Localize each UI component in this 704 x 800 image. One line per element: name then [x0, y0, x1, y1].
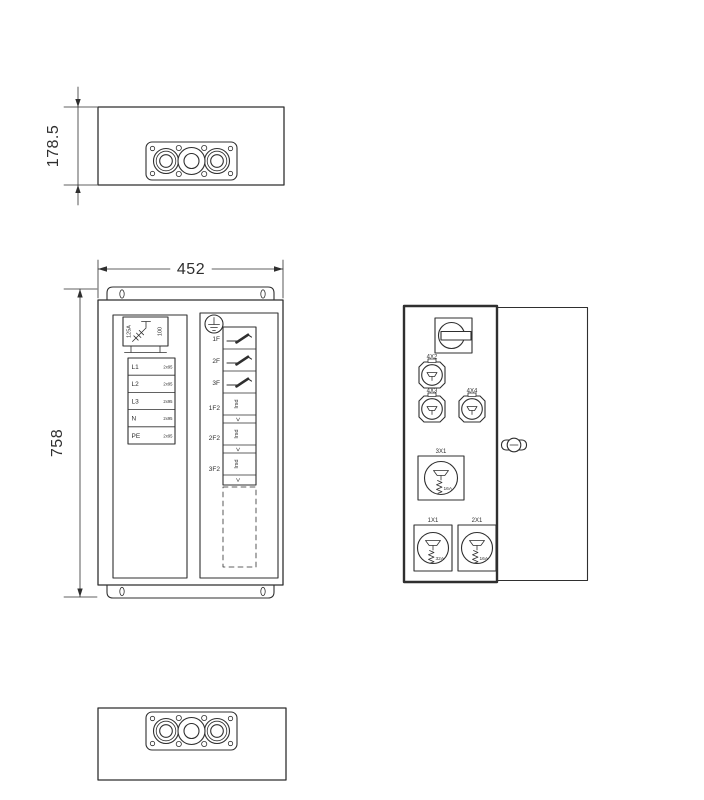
dimension-width-label: 452	[177, 261, 205, 278]
feeder-label: 3F	[212, 380, 220, 387]
cable-gland-plate-icon	[146, 712, 237, 750]
socket-rating: 32A	[436, 556, 445, 562]
feeder-label: 1F	[212, 336, 220, 343]
socket-outlet-icon	[419, 359, 445, 388]
socket-outlet-icon	[419, 393, 445, 422]
socket-label: 2X1	[472, 518, 483, 524]
bottom-view	[98, 708, 286, 780]
rcd-label: 1F2	[209, 405, 221, 412]
terminal-size: 2x95	[163, 433, 173, 438]
front-view-enclosure-outline	[98, 300, 283, 585]
rcd-marking: Irsd	[234, 459, 240, 468]
terminal-size: 2x95	[163, 416, 173, 421]
rcd-label: 3F2	[209, 466, 221, 473]
socket-rating: 16A	[480, 556, 489, 562]
cad-drawing-canvas: 178.5 125A 100	[0, 0, 704, 800]
dimension-depth-label: 178.5	[45, 125, 62, 168]
terminal-label: L1	[132, 364, 140, 371]
socket-rating: 16A	[444, 486, 453, 492]
socket-outlet-icon	[459, 393, 485, 422]
mounting-flange-bottom	[107, 585, 274, 598]
socket-label: 1X1	[428, 518, 439, 524]
rcd-arrow: <	[236, 478, 243, 482]
terminal-size: 2x95	[163, 399, 173, 404]
main-switch-frame-label: 100	[158, 327, 164, 336]
side-view: 4X2 4X3 4X4 3X1 16A 1X1 32A	[404, 306, 588, 582]
door-latch-icon	[502, 438, 527, 452]
terminal-label: N	[132, 416, 137, 423]
dimension-height-label: 758	[49, 429, 66, 457]
terminal-label: PE	[132, 433, 141, 440]
dimension-depth: 178.5	[45, 87, 97, 205]
front-view: 125A 100 L1 2x95 L2 2x95 L3 2x95 N	[98, 287, 283, 598]
rcd-arrow: <	[236, 417, 243, 421]
rcd-arrow: <	[236, 447, 243, 451]
mounting-flange-top	[107, 287, 274, 300]
terminal-size: 2x95	[163, 382, 173, 387]
dimension-height: 758	[49, 289, 97, 597]
feeder-label: 2F	[212, 358, 220, 365]
rcd-marking: Irsd	[234, 429, 240, 438]
top-view	[98, 107, 284, 185]
terminal-size: 2x95	[163, 365, 173, 370]
terminal-label: L2	[132, 381, 140, 388]
rcd-marking: Irsd	[234, 399, 240, 408]
terminal-label: L3	[132, 398, 140, 405]
main-switch-rating-label: 125A	[127, 325, 133, 338]
socket-label: 3X1	[436, 449, 447, 455]
rcd-label: 2F2	[209, 435, 221, 442]
cable-gland-plate-icon	[146, 142, 237, 180]
